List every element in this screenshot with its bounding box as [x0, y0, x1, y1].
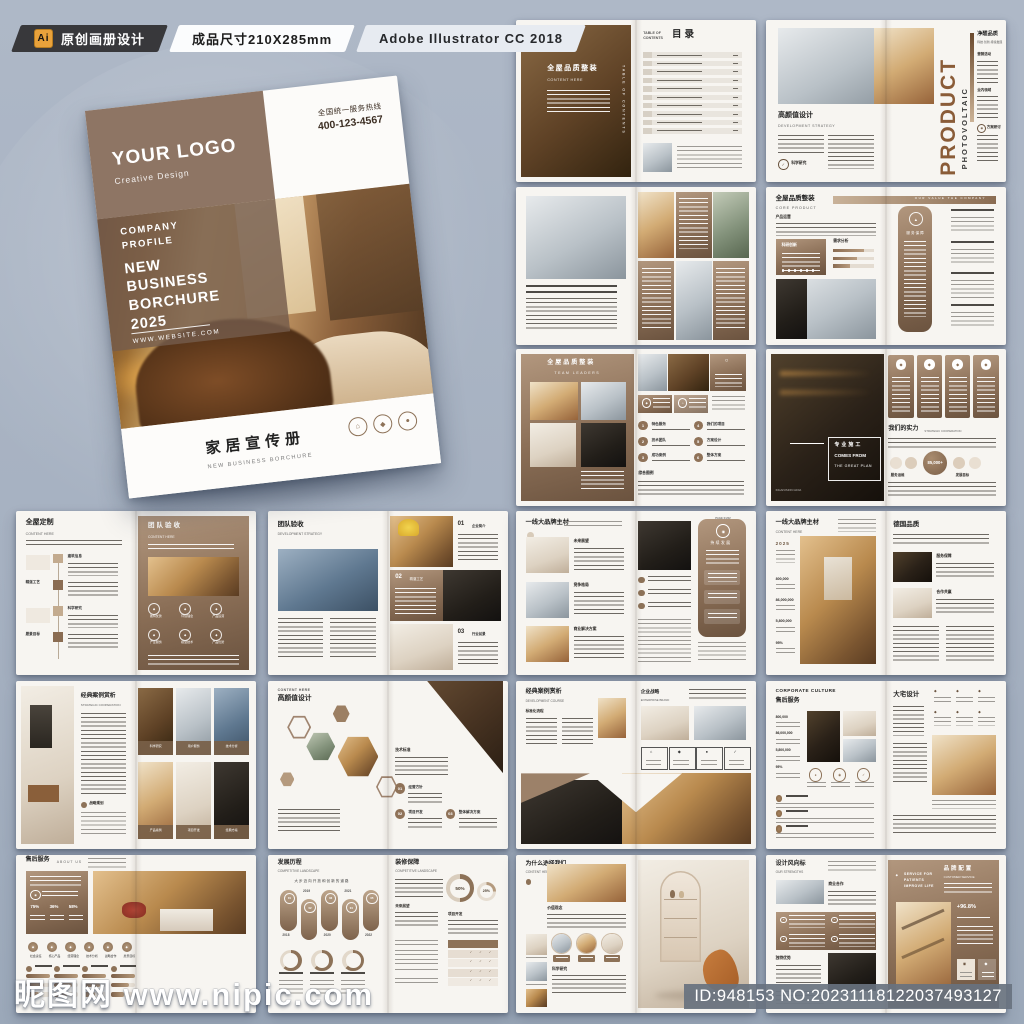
label: 商业合作 [828, 882, 843, 887]
label: 一线大品牌主材 [526, 519, 569, 526]
spread-11-classic-cases: 经典案例赏析STRATEGIC COOPERATION战略规划科学研究产品案例用… [16, 681, 256, 849]
label: 未来展望 [395, 904, 409, 908]
text-lines [888, 438, 996, 447]
label: 发展目标 [956, 473, 970, 477]
label: 需求分析 [833, 239, 848, 244]
text-lines [778, 135, 824, 154]
text-lines [395, 588, 436, 614]
photo [526, 626, 569, 662]
vertical-label: TABLE OF CONTENTS [622, 65, 626, 140]
label: 全屋品质整装 [547, 360, 595, 367]
house-icon: ⌂ [678, 398, 687, 407]
text-lines [782, 253, 820, 270]
label: CONTENT HERE [26, 532, 54, 536]
label: 企业战略 [641, 689, 659, 695]
text-lines [689, 689, 747, 701]
text-lines [707, 429, 745, 432]
feature-icon: ◆ [934, 710, 937, 714]
photo [843, 739, 877, 763]
bulb-icon: ○ [725, 358, 729, 365]
text-lines [638, 619, 691, 662]
text-lines [789, 934, 825, 947]
label: COMPETITIVE LANDSCAPE [395, 870, 437, 874]
toc-line [657, 88, 702, 89]
circle-icon [81, 802, 87, 808]
value-icon: ◆ [103, 942, 113, 952]
donut-hole [346, 953, 361, 968]
hardhat [398, 519, 420, 535]
label: 一线大品牌主材 [776, 519, 819, 526]
text-lines [893, 626, 939, 662]
toc-row [643, 78, 741, 84]
label: 愿景目标 [26, 632, 40, 636]
toc-line [657, 130, 702, 131]
text-lines [786, 825, 808, 830]
text-lines [395, 959, 438, 964]
circle-icon [890, 457, 902, 469]
text-lines [807, 782, 826, 789]
gradient-bar [970, 33, 974, 122]
label: 2025 [776, 541, 790, 547]
bar-fill [833, 264, 850, 267]
text-lines [855, 782, 874, 789]
toc-page [733, 130, 738, 131]
photo [306, 731, 335, 761]
label: 科技·创新·持续发展 [977, 41, 1002, 44]
label: 德国品质 [893, 521, 919, 529]
label: 经典案例赏析 [81, 693, 116, 700]
banner-label: OUR VALUE THE COMPANY [915, 197, 986, 201]
label: 精湛工艺 [26, 580, 40, 584]
service-icon: ● [809, 768, 822, 781]
number-badge: 02 [395, 809, 405, 819]
label: 营销活动 [977, 52, 991, 56]
text-lines [888, 482, 996, 496]
photo [443, 570, 501, 621]
photo [581, 423, 627, 467]
stat-value: 800,000 [776, 577, 789, 581]
text-lines [786, 810, 808, 815]
text-lines [458, 642, 499, 665]
text-lines [526, 984, 548, 987]
label: 团队验收 [278, 521, 304, 529]
brochure-cover-mockup: YOUR LOGO Creative Design 全国统一服务热线 400-1… [85, 75, 441, 498]
house-icon: ⌂ [347, 416, 368, 437]
check-icon: ✓ [479, 979, 482, 983]
red-chairs [122, 902, 146, 918]
toolbar-segment-software: Adobe Illustrator CC 2018 [356, 25, 586, 52]
photo [676, 261, 712, 340]
feature-icon: ⌂ [650, 750, 652, 755]
check-icon: ✓ [489, 960, 492, 964]
label: 竞争格局 [574, 583, 589, 588]
circle-icon [953, 457, 965, 469]
list-icon: ● [831, 936, 838, 943]
check-icon: ✓ [489, 979, 492, 983]
text-lines [448, 920, 498, 934]
label: COMPETITIVE LANDSCAPE [278, 870, 320, 874]
text-lines [951, 280, 994, 297]
check-icon: ✓ [470, 970, 473, 974]
toc-page [733, 80, 738, 81]
label: 服务运维 [891, 473, 905, 477]
vase [679, 891, 683, 897]
toc-row [643, 95, 741, 101]
text-lines [652, 445, 690, 448]
text-lines [278, 809, 340, 834]
diamond-icon: ◆ [372, 414, 393, 435]
product-size-label: 成品尺寸210X285mm [192, 29, 332, 48]
toc-page [733, 63, 738, 64]
text-lines [951, 249, 994, 266]
text-lines [776, 818, 874, 823]
number-badge: 01 [395, 783, 405, 793]
number-badge: 6 [694, 453, 703, 462]
hex-inner [289, 717, 309, 738]
bar-fill [833, 249, 864, 252]
text-lines [648, 602, 691, 609]
card-label: 经典方案 [219, 829, 244, 833]
stat-value: 5,800,000 [776, 748, 791, 752]
check-icon: ✓ [489, 951, 492, 955]
image-id-text: ID:948153 NO:20231118122037493127 [694, 987, 1002, 1006]
value-icon: ◆ [47, 942, 57, 952]
photo [807, 711, 841, 761]
text-lines [839, 915, 875, 928]
hex-outline [287, 715, 311, 740]
text-lines [828, 135, 874, 169]
photo [874, 28, 934, 104]
photo [598, 698, 627, 738]
year-label: 2020 [324, 934, 331, 938]
timeline-card [26, 555, 50, 570]
text-lines [68, 634, 118, 650]
timeline-node [53, 632, 63, 642]
toc-row [643, 61, 741, 67]
label: 综合图例 [638, 471, 653, 476]
diamond-icon: ◆ [642, 398, 651, 407]
text-lines [648, 576, 691, 583]
bar-fill [833, 257, 857, 260]
label: STRATEGIC COOPERATION [81, 704, 121, 708]
toc-page [733, 55, 738, 56]
toc-num [643, 128, 652, 134]
vertical-word: PHOTOVOLTAIC [960, 56, 969, 169]
text-lines [574, 592, 624, 617]
label: 大宅设计 [893, 691, 919, 699]
toc-page [733, 122, 738, 123]
text-lines [69, 915, 83, 921]
label: 整体解决方案 [459, 810, 481, 814]
circle-icon [969, 457, 981, 469]
number-badge: 1 [638, 421, 647, 430]
feature-icon: ◆ [678, 750, 681, 755]
circle-icon [905, 457, 917, 469]
text-lines [789, 915, 825, 928]
service-icon: ✓ [857, 768, 870, 781]
donut-chart: 25% [477, 882, 496, 901]
label: 科学研究 [552, 967, 567, 972]
text-lines [977, 135, 997, 161]
slogan: SERVICE FOR PATIENTS IMPROVE LIFE [904, 872, 934, 889]
photo [893, 552, 931, 582]
label: 产业服务 [145, 641, 167, 645]
toc-page [733, 114, 738, 115]
label: 战略规划 [89, 801, 103, 805]
text-lines [951, 312, 994, 329]
photo [278, 549, 379, 611]
text-lines [715, 374, 741, 387]
label: INGAIVISION GIOIA [776, 489, 802, 492]
number-badge: 03 [446, 809, 456, 819]
company-profile-label: COMPANY PROFILE [120, 220, 181, 254]
label: 方案研讨 [987, 125, 1001, 129]
year-label: 2018 [282, 934, 289, 938]
timeline-card [26, 608, 50, 623]
year-label: 2022 [365, 934, 372, 938]
label: 全屋定制 [26, 519, 54, 527]
text-lines [30, 915, 44, 921]
card-label: 用户服务 [181, 745, 206, 749]
target-icon: ◉ [977, 124, 986, 133]
text-lines [951, 272, 994, 277]
text-lines [707, 460, 745, 463]
toc-num [643, 69, 652, 75]
text-lines [893, 743, 927, 783]
label: 科研创新 [782, 243, 797, 248]
text-lines [88, 858, 126, 869]
label: 独特优势 [145, 615, 167, 619]
label: OUR STRENGTHS [776, 871, 804, 875]
spread-12-hi-design: CONTENT HERE高颜值设计技术标准01经营方针02项目开发03整体解决方… [268, 681, 508, 849]
text-lines [26, 540, 122, 548]
label: 科学研究 [68, 606, 82, 610]
label: ABOUT US [57, 860, 82, 864]
label: TABLE OF CONTENTS [643, 31, 663, 40]
table-header [448, 940, 498, 948]
label: ENTERPRISE BRAND [641, 699, 669, 702]
label: THE GREAT PLAN [834, 464, 872, 468]
donut-hole: 25% [480, 885, 493, 898]
card-label: 项目开发 [181, 829, 206, 833]
label: 团队验收 [148, 522, 182, 530]
label: 我们的实力 [888, 426, 918, 433]
text-lines [978, 697, 995, 705]
text-lines [556, 957, 568, 960]
label: 未来展望 [574, 539, 589, 544]
timeline-node [53, 580, 63, 590]
label: 特色服务 [652, 422, 666, 426]
check-icon: ✓ [479, 951, 482, 955]
text-lines [547, 90, 609, 113]
spread-14-culture: CORPORATE CULTURE售后服务800,00086,000,0005,… [766, 681, 1006, 849]
donut-hole [283, 953, 298, 968]
toc-page [733, 97, 738, 98]
text-lines [701, 760, 716, 765]
text-lines [776, 803, 874, 808]
spread-5-team-leaders: 全屋品质整装TEAM LEADERS○◆⌂1特色服务2技术团队3成功案例4我们的… [516, 349, 756, 506]
label: 持续发展 [710, 541, 731, 546]
photo [526, 962, 548, 981]
photo [932, 735, 997, 795]
column-icon: ◆ [896, 359, 907, 370]
spread-6-strength: 专业施工COMES FROMTHE GREAT PLANINGAIVISION … [766, 349, 1006, 506]
white-rule [790, 443, 824, 444]
adobe-illustrator-icon: Ai [34, 29, 53, 48]
text-lines [776, 550, 795, 563]
diamond-icon: ◆ [896, 874, 898, 878]
text-lines [776, 584, 795, 592]
photo [148, 557, 239, 596]
text-lines [564, 521, 622, 529]
label: 大步迈向开放和创新的道路 [294, 879, 349, 883]
stat-value: 95% [776, 641, 783, 645]
photo [602, 934, 621, 953]
text-lines [581, 471, 624, 491]
photo [526, 934, 548, 955]
number-badge: 2 [638, 437, 647, 446]
text-lines [951, 304, 994, 309]
step-number: 05 [366, 893, 377, 904]
text-lines [395, 950, 438, 955]
text-lines [831, 782, 850, 789]
label: 经营方针 [408, 785, 422, 789]
circle-icon [776, 795, 783, 802]
label: 整体方案 [707, 453, 721, 457]
text-lines [951, 209, 994, 214]
text-lines [776, 965, 822, 986]
watermark: 昵图网 www.nipic.com [14, 969, 374, 1014]
label: CUSTOMER SERVICE [944, 876, 975, 880]
text-lines [960, 972, 972, 977]
step-number: 01 [284, 893, 295, 904]
toc-row [643, 111, 741, 117]
photo [800, 536, 877, 664]
diamond-icon: ◆ [984, 962, 987, 967]
toc-page [733, 71, 738, 72]
label: STRATEGIC COOPERATION [924, 430, 961, 433]
text-lines [526, 957, 548, 960]
toc-num [643, 61, 652, 67]
text-lines [581, 957, 593, 960]
label: 设计风向标 [776, 861, 806, 868]
label: 标准化流程 [526, 709, 544, 713]
check-icon: ✓ [470, 951, 473, 955]
text-lines [395, 940, 438, 945]
label: COMES FROM [834, 453, 866, 459]
label: 商业解决方案 [574, 627, 597, 632]
text-lines [776, 739, 800, 746]
label: 项目开发 [408, 810, 422, 814]
text-lines [921, 377, 939, 413]
photo [713, 192, 749, 258]
text-lines [977, 61, 997, 84]
text-lines [278, 618, 324, 659]
label: 项目开发 [448, 912, 462, 916]
label: 行业前景 [472, 632, 486, 636]
text-lines [956, 697, 973, 705]
label: 产品运营 [776, 215, 791, 220]
toc-row [643, 128, 741, 134]
circle-icon [638, 603, 644, 609]
label: 目录 [672, 29, 697, 40]
toc-num [643, 86, 652, 92]
text-lines [547, 914, 626, 928]
label: 业内领域 [977, 88, 991, 92]
icon-box [696, 747, 723, 771]
panel-dots [782, 269, 816, 271]
toc-line [657, 71, 702, 72]
photo [843, 711, 877, 736]
label: 产品优势 [208, 641, 230, 645]
text-lines [148, 544, 234, 552]
text-lines [395, 978, 438, 983]
check-icon: ✓ [470, 979, 473, 983]
icon-box [724, 747, 751, 771]
label: 装修保障 [395, 860, 419, 867]
photo [668, 354, 709, 392]
text-lines [838, 519, 876, 532]
percent-value: 75% [30, 904, 39, 909]
number-badge: 3 [638, 453, 647, 462]
toc-row [643, 69, 741, 75]
shelf-glow [780, 390, 871, 395]
feature-icon: ◆ [978, 710, 981, 714]
toolbar-title: 原创画册设计 [61, 29, 145, 48]
label: DEVELOPMENT STRATEGY [778, 124, 835, 128]
feature-icon: ✓ [733, 750, 736, 755]
text-lines [934, 717, 951, 725]
text-lines [652, 460, 690, 463]
toc-line [657, 122, 702, 123]
list-icon: ● [831, 917, 838, 924]
text-lines [395, 879, 443, 900]
cover-title-panel: COMPANY PROFILE NEW BUSINESS BORCHURE 20… [97, 199, 290, 351]
donut-chart: 50% [446, 874, 475, 902]
text-lines [458, 534, 499, 562]
photo [776, 880, 824, 904]
circle-icon [776, 825, 783, 832]
label: 科学研究 [791, 161, 806, 166]
label: 服务保障 [906, 231, 924, 235]
check-icon: ✓ [489, 970, 492, 974]
year-label: 2019 [303, 890, 310, 894]
text-lines [776, 756, 800, 763]
spread-2-product: 高颜值设计DEVELOPMENT STRATEGY✓科学研究PRODUCTPHO… [766, 20, 1006, 182]
text-lines [648, 589, 691, 596]
label: 02 [395, 574, 402, 581]
step-number: 02 [304, 902, 315, 913]
text-lines [839, 934, 875, 947]
timeline-node [53, 606, 63, 616]
text-lines [42, 891, 78, 897]
text-lines [526, 298, 617, 331]
text-lines [946, 626, 994, 662]
photo [638, 192, 674, 258]
label: CORPORATE CULTURE [776, 688, 836, 694]
check-icon: ✓ [479, 960, 482, 964]
toc-page [733, 88, 738, 89]
text-lines [708, 593, 737, 601]
label: 独特优势 [776, 956, 791, 961]
stat-value: 86,000,000 [776, 731, 793, 735]
text-lines [68, 615, 118, 628]
spread-10-materials-2: 一线大品牌主材CONTENT HERE2025800,00086,000,000… [766, 511, 1006, 675]
text-lines [562, 718, 593, 745]
shelf-line [664, 899, 698, 900]
label: CORE PRODUCT [776, 206, 817, 210]
logo-text: YOUR LOGO [111, 136, 238, 172]
